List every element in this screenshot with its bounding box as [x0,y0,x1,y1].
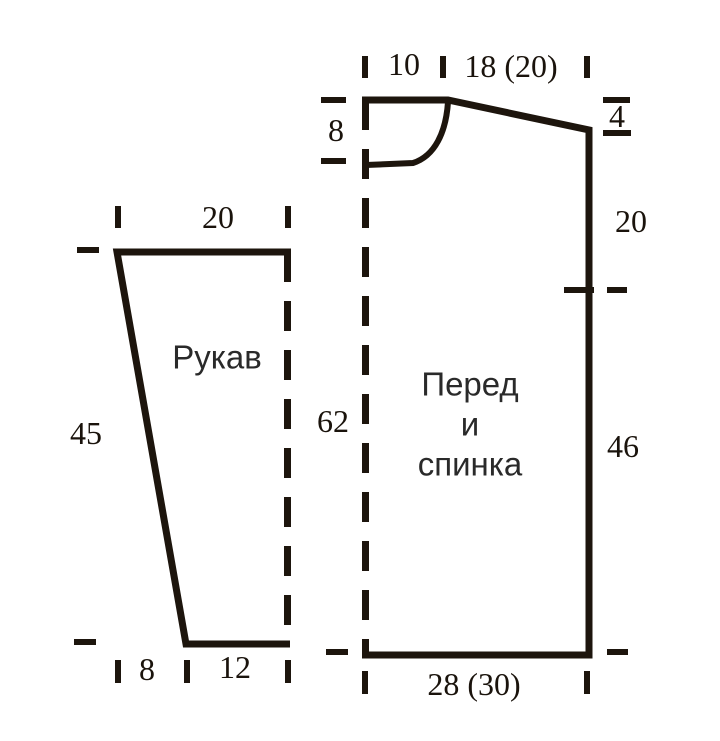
body-shoulder-drop-value: 4 [609,100,625,132]
body-neckline-curve [366,102,448,165]
body-center-height-value: 62 [317,405,349,437]
sleeve-bottom-offset-value: 8 [139,653,155,685]
body-neck-width-value: 10 [388,48,420,80]
body-label-line1: Перед [421,368,518,401]
body-shoulder-width-value: 18 (20) [464,50,557,82]
pattern-diagram: 20 45 Рукав 8 12 10 18 (20) 8 4 20 62 46… [0,0,720,741]
body-neck-depth-value: 8 [328,114,344,146]
sleeve-bottom-width-value: 12 [219,651,251,683]
body-bottom-width-value: 28 (30) [427,668,520,700]
sleeve-label: Рукав [172,341,262,374]
body-label-line3: спинка [418,448,523,481]
sleeve-outline [117,252,291,644]
body-label-line2: и [461,408,479,441]
sleeve-side-height-value: 45 [70,417,102,449]
body-side-height-value: 46 [607,430,639,462]
body-yoke-height-value: 20 [615,205,647,237]
sleeve-top-width-value: 20 [202,201,234,233]
